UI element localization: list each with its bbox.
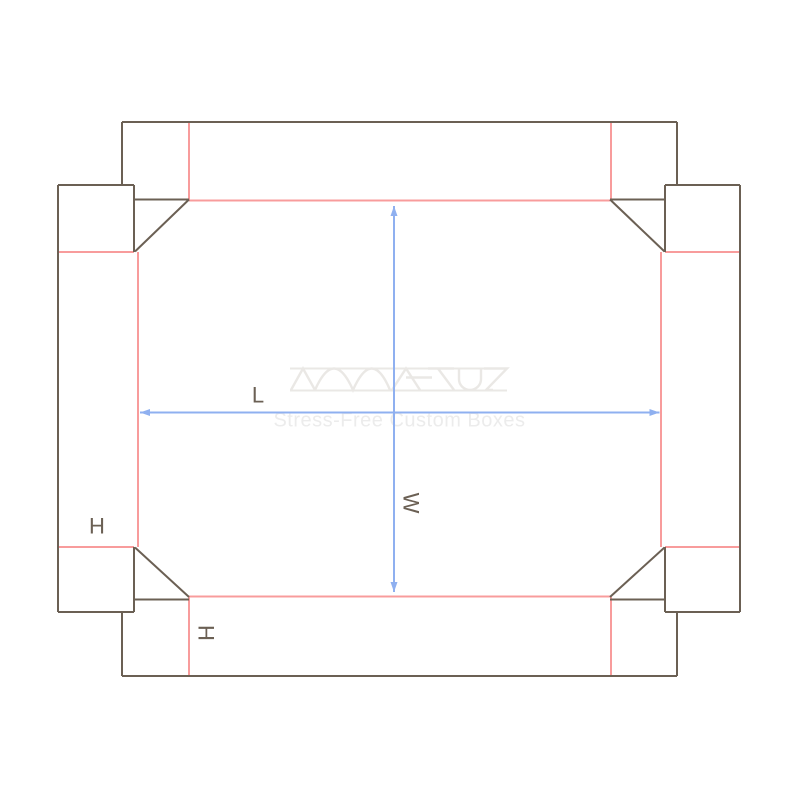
cut-lines [58,122,740,676]
logo-glyph [438,369,454,391]
corrugated-logo-icon [291,369,507,391]
logo-glyph [459,369,481,390]
watermark: Stress-Free Custom Boxes [273,369,525,432]
label-length-L: L [252,383,264,408]
arrowhead-icon [650,409,660,416]
cut-lines-segment [610,548,665,598]
cut-lines-segment [610,200,665,252]
fold-lines [58,122,740,676]
label-height-H-bottom: H [194,625,219,641]
logo-glyph [484,369,507,391]
arrowhead-icon [140,409,150,416]
logo-glyph [392,369,420,391]
label-width-W: W [399,493,424,514]
dieline-diagram-canvas: Stress-Free Custom Boxes L W H H [0,0,800,800]
label-height-H-side: H [89,514,105,539]
cut-lines-segment [135,200,189,252]
logo-glyph [291,369,315,391]
logo-glyph [315,369,390,391]
box-dieline-drawing: Stress-Free Custom Boxes L W H H [0,0,800,800]
cut-lines-segment [135,548,189,598]
arrowhead-icon [391,582,398,592]
dimension-arrow-width [391,206,398,592]
arrowhead-icon [391,206,398,216]
dimension-arrows [140,206,660,592]
